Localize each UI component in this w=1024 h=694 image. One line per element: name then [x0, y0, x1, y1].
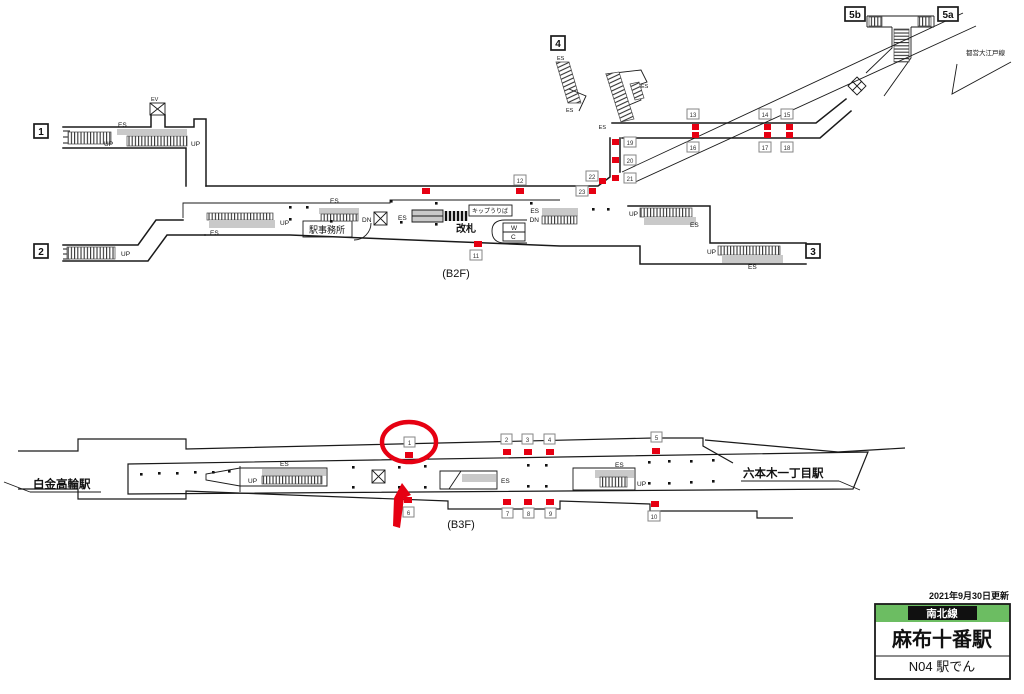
station-map-page: ES UP UP EV UP ES UP 駅事務所: [0, 0, 1024, 689]
b3f-stairs: [542, 216, 577, 224]
es-label: ES: [280, 461, 289, 468]
exit4-escalator-shaft: [556, 62, 581, 103]
svg-text:21: 21: [627, 177, 634, 183]
sign-9: 9: [545, 508, 556, 518]
svg-text:12: 12: [517, 179, 524, 185]
station-map: ES UP UP EV UP ES UP 駅事務所: [0, 0, 1024, 689]
neighbor-right: 六本木一丁目駅: [741, 466, 860, 490]
ev-label: EV: [151, 97, 159, 103]
svg-text:13: 13: [690, 113, 697, 119]
es-label: ES: [566, 108, 574, 114]
sign-7: 7: [502, 508, 513, 518]
b3f-floor-label: (B3F): [447, 519, 475, 531]
up-label: UP: [104, 141, 113, 148]
oedo-line-label: 都営大江戸線: [966, 48, 1006, 57]
sign-5: 5: [651, 432, 662, 442]
up-label: UP: [248, 478, 257, 485]
oedo-passage: [622, 13, 976, 183]
dn-label: DN: [530, 217, 540, 224]
b2f-floor-label: (B2F): [442, 268, 470, 280]
sign-21: 21: [624, 173, 636, 183]
exit5a-stairs: [918, 17, 931, 26]
sign-18: 18: [781, 142, 793, 152]
b3f-level: ES UP ES ES UP: [4, 422, 905, 531]
up-label: UP: [191, 141, 200, 148]
sign-20: 20: [624, 155, 636, 165]
exit3-escalator1: [644, 217, 696, 225]
exit4-escalators: ES ES ES ES: [556, 56, 649, 131]
exit-5b: 5b: [845, 7, 865, 21]
exit2-stairs: [67, 247, 115, 259]
svg-text:1: 1: [38, 127, 44, 138]
svg-text:18: 18: [784, 146, 791, 152]
ticket-office-label: キップうりば: [472, 207, 508, 215]
svg-text:3: 3: [810, 247, 816, 258]
es-label: ES: [501, 478, 510, 485]
svg-text:22: 22: [589, 175, 596, 181]
upper-corridor: [612, 99, 851, 138]
exit2-corridor: UP ES UP: [63, 213, 289, 261]
svg-text:19: 19: [627, 141, 634, 147]
exit-5a: 5a: [938, 7, 958, 21]
svg-text:14: 14: [762, 113, 769, 119]
up-label: UP: [637, 481, 646, 488]
dn-label: DN: [362, 217, 372, 224]
legend: 2021年9月30日更新 南北線 麻布十番駅 N04 駅でん: [875, 590, 1010, 679]
platform-escalator-2: ES: [440, 471, 510, 489]
sign-1: 1: [404, 437, 415, 447]
sign-12: 12: [514, 175, 526, 185]
es-label: ES: [330, 198, 339, 205]
es-label: ES: [615, 462, 624, 469]
sign-19: 19: [624, 137, 636, 147]
sign-22: 22: [586, 171, 598, 181]
svg-text:10: 10: [651, 515, 658, 521]
station-code: N04 駅でん: [909, 659, 975, 674]
toilet-c-label: C: [511, 234, 516, 241]
concourse-left-stairs: [207, 213, 273, 220]
platform-escalator-1: ES UP: [206, 461, 327, 486]
neighbor-left: 白金高輪駅: [4, 477, 101, 492]
svg-text:六本木一丁目駅: 六本木一丁目駅: [743, 466, 824, 480]
sign-11: 11: [470, 250, 482, 260]
track-top: [18, 438, 733, 463]
svg-text:17: 17: [762, 146, 769, 152]
es-label: ES: [599, 125, 607, 131]
svg-text:4: 4: [555, 39, 561, 50]
sign-15: 15: [781, 109, 793, 119]
line-name: 南北線: [926, 607, 958, 620]
exit-4: 4: [551, 36, 565, 50]
sign-2: 2: [501, 434, 512, 444]
svg-text:16: 16: [690, 146, 697, 152]
exit-2: 2: [34, 244, 48, 258]
exit-3: 3: [806, 244, 820, 258]
sign-3: 3: [522, 434, 533, 444]
b3f-escalator: [542, 208, 578, 216]
up-label: UP: [280, 220, 289, 227]
sign-13: 13: [687, 109, 699, 119]
es-label: ES: [557, 56, 565, 62]
exit1-escalator: [117, 129, 187, 135]
sign-23: 23: [576, 186, 588, 196]
svg-text:5b: 5b: [849, 10, 861, 21]
station-name: 麻布十番駅: [891, 627, 992, 651]
concourse: 駅事務所 ES DN ES 改札 キップうりば: [183, 138, 806, 264]
sign-17: 17: [759, 142, 771, 152]
ticket-gates: [446, 211, 466, 221]
exit3-stairs1: [640, 208, 692, 217]
up-label: UP: [629, 211, 638, 218]
b2f-level: ES UP UP EV UP ES UP 駅事務所: [34, 7, 1011, 280]
es-label: ES: [641, 84, 649, 90]
exit-1: 1: [34, 124, 48, 138]
es-label: ES: [398, 215, 407, 222]
exit5-stem-stairs: [894, 29, 909, 62]
svg-text:5a: 5a: [942, 10, 954, 21]
sign-10: 10: [648, 511, 660, 521]
sign-14: 14: [759, 109, 771, 119]
es-label: ES: [690, 222, 699, 229]
es-label: ES: [530, 208, 539, 215]
es-label: ES: [210, 230, 219, 237]
highlight-arrow: [393, 483, 411, 528]
toilet-w-label: W: [511, 225, 518, 232]
svg-text:20: 20: [627, 159, 634, 165]
sign-4: 4: [544, 434, 555, 444]
svg-text:2: 2: [38, 247, 44, 258]
station-office-label: 駅事務所: [309, 224, 345, 235]
svg-text:15: 15: [784, 113, 791, 119]
es-label: ES: [118, 122, 127, 129]
exit3-escalator2: [722, 255, 783, 263]
up-label: UP: [707, 249, 716, 256]
svg-text:白金高輪駅: 白金高輪駅: [33, 477, 91, 491]
exit1-corridor: ES UP UP EV: [63, 97, 206, 186]
gate-label: 改札: [456, 222, 476, 235]
svg-text:23: 23: [579, 190, 586, 196]
concourse-escalator: [319, 208, 359, 214]
up-label: UP: [121, 251, 130, 258]
exit3-stairs2: [718, 246, 780, 255]
sign-6: 6: [403, 507, 414, 517]
concourse-stairs: [321, 214, 358, 221]
es-label: ES: [748, 264, 757, 271]
platform-escalator-3: ES UP: [573, 462, 646, 490]
updated-date: 2021年9月30日更新: [929, 590, 1009, 601]
concourse-left-escalator: [209, 220, 275, 228]
exit5b-stairs: [869, 17, 882, 26]
exit1-stairs2: [127, 136, 187, 146]
exit5-area: 都営大江戸線: [622, 13, 1011, 183]
exit3-corridor: UP ES UP ES: [629, 208, 783, 271]
sign-16: 16: [687, 142, 699, 152]
svg-text:11: 11: [473, 254, 480, 260]
track-top-outer: [705, 440, 905, 452]
sign-8: 8: [523, 508, 534, 518]
